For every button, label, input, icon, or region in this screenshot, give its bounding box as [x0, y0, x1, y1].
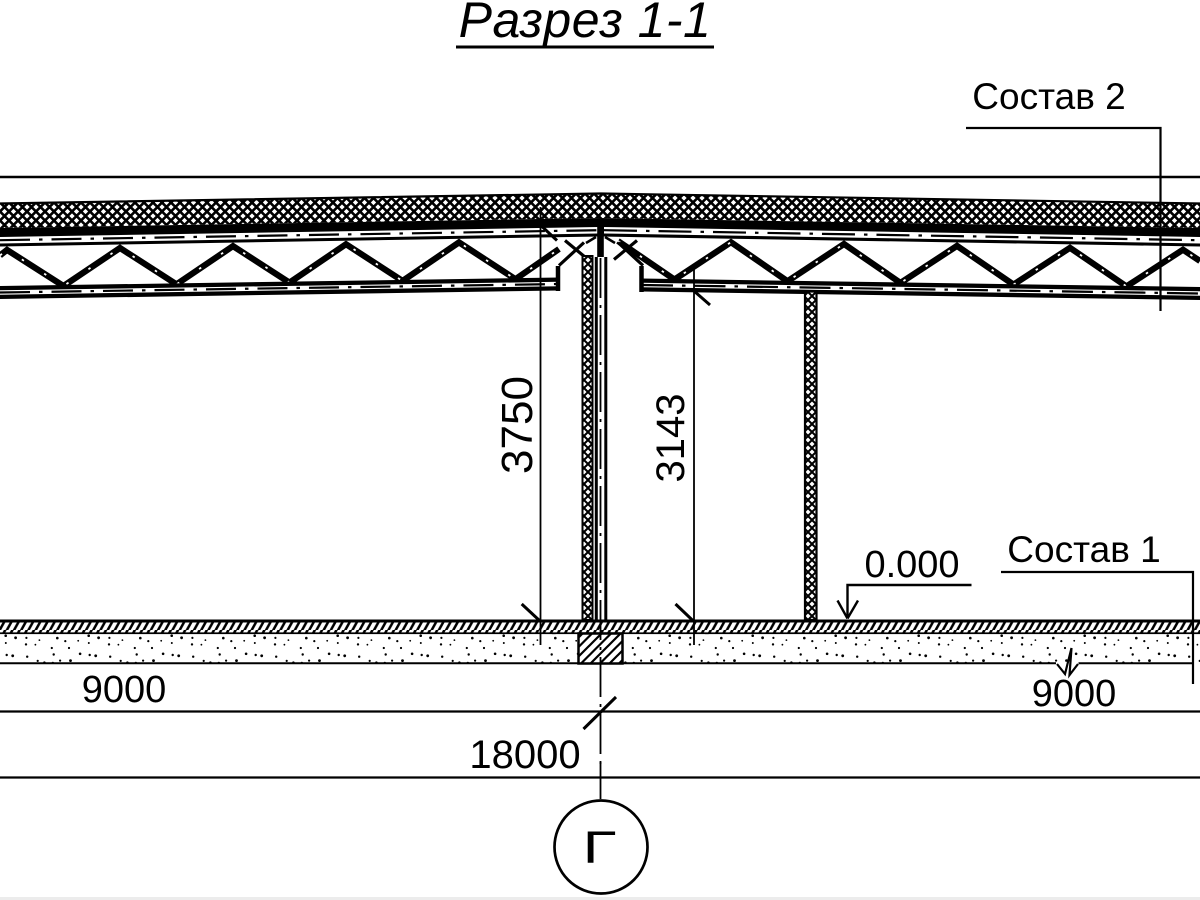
svg-text:9000: 9000 — [1032, 673, 1117, 715]
svg-text:0.000: 0.000 — [864, 544, 959, 586]
svg-text:9000: 9000 — [82, 669, 167, 711]
svg-text:3143: 3143 — [649, 394, 693, 483]
svg-text:3750: 3750 — [493, 376, 542, 474]
svg-text:Состав 1: Состав 1 — [1007, 529, 1160, 570]
svg-text:Состав 2: Состав 2 — [972, 76, 1125, 117]
svg-text:18000: 18000 — [469, 733, 580, 777]
svg-text:Разрез 1-1: Разрез 1-1 — [459, 0, 712, 48]
svg-text:Г: Г — [583, 823, 617, 873]
